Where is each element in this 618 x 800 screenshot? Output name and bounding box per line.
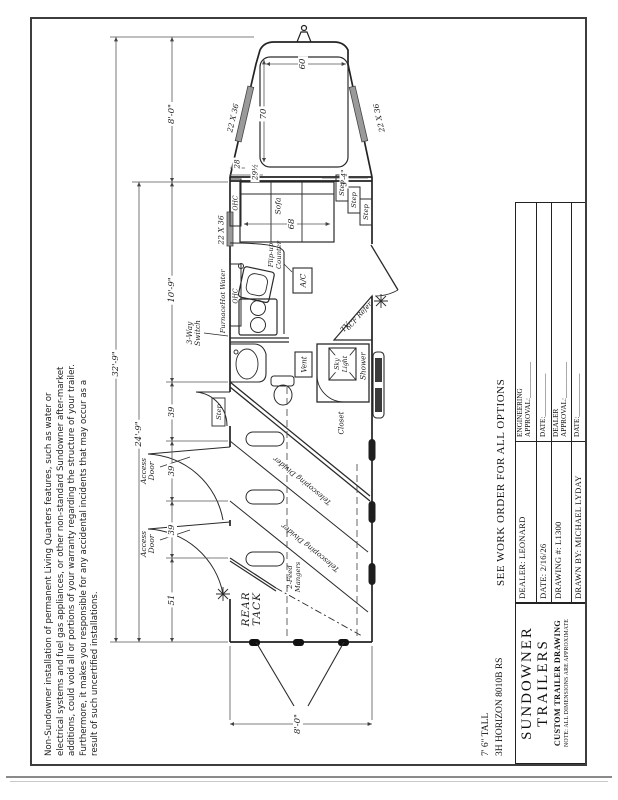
frame-interior: Non-Sundowner installation of permanent … [32,19,585,764]
dealer-approval-field: DEALER APPROVAL:__________ [552,203,571,441]
dim-stall-3: 39 [167,523,177,538]
label-closet: Closet [337,412,346,435]
company-title-box: SUNDOWNER TRAILERS CUSTOM TRAILER DRAWIN… [515,602,585,764]
label-roof-vent: Vent [299,356,308,372]
label-furnace: Furnace [219,305,227,334]
label-flip-up-counter: Flip-up Counter [267,241,283,269]
see-work-order-note: SEE WORK ORDER FOR ALL OPTIONS [495,379,507,586]
dim-gooseneck-length: 8'-0" [167,102,177,126]
dim-overall-length: 32'-9" [111,349,121,378]
dim-bed-length: 70 [259,107,269,122]
label-step-1: Step [338,180,346,196]
label-window-sofa: 22 X 36 [217,215,226,244]
label-step-2: Step [350,192,358,208]
label-feed-mangers: 2-Feed Mangers [286,562,302,593]
drawing-type: CUSTOM TRAILER DRAWING [553,603,562,763]
model-height: 7' 6" TALL [481,713,491,756]
dim-rear-tack-length: 51 [167,593,177,608]
label-ac-unit: A/C [298,274,307,288]
label-step-escape-door: Step [215,404,223,420]
date-field: DATE: 2/16/26 [537,441,551,603]
label-access-door-1: Access Door [140,458,156,484]
drawing-number-field: DRAWING #: L1300 [552,441,571,603]
engineering-approval-field: ENGINEERING APPROVAL:__________ [516,203,536,441]
label-step-3: Step [362,204,370,220]
model-number: 3H HORIZON 8010B RS [495,658,505,756]
scanned-trailer-drawing-page: Non-Sundowner installation of permanent … [0,0,618,800]
dim-floor-length: 24'-9" [134,419,144,448]
dealer-field: DEALER: LEONARD [516,441,536,603]
dim-28: 28 [233,157,242,170]
landscape-sheet: Non-Sundowner installation of permanent … [32,19,585,764]
scan-edge-line-2 [10,781,608,782]
dim-lq-length: 10'-9" [167,275,177,304]
dim-stall-1: 39 [167,405,177,420]
dim-29-half: 29½ [251,162,260,182]
company-name-line1: SUNDOWNER [519,603,535,763]
dimensions-note: NOTE: ALL DIMENSIONS ARE APPROXIMATE [564,603,570,763]
dim-bed-width: 60 [298,57,308,72]
label-ohc-1: OHC [232,195,239,210]
label-3-way-switch: 3-Way Switch [186,320,202,346]
dealer-date-field: DATE:____________ [572,203,585,441]
engineering-date-field: DATE:____________ [537,203,551,441]
company-name-line2: TRAILERS [535,603,551,763]
label-rear-tack: REAR TACK [241,591,263,626]
label-shower: Shower [359,352,368,380]
scan-edge-line [6,776,612,778]
dim-stall-2: 39 [167,464,177,479]
label-sofa: Sofa [274,198,283,215]
label-hot-water: Hot Water [219,269,227,304]
title-block-grid: DEALER: LEONARD ENGINEERING APPROVAL:___… [515,202,585,604]
label-skylight: Sky Light [334,356,350,373]
label-access-door-2: Access Door [140,531,156,557]
label-ohc-2: OHC [232,288,239,303]
dim-sofa-length: 68 [287,217,297,232]
drawn-by-field: DRAWN BY: MICHAEL LYDAY [572,441,585,603]
dim-rear-width: 8'-0" [293,712,303,736]
